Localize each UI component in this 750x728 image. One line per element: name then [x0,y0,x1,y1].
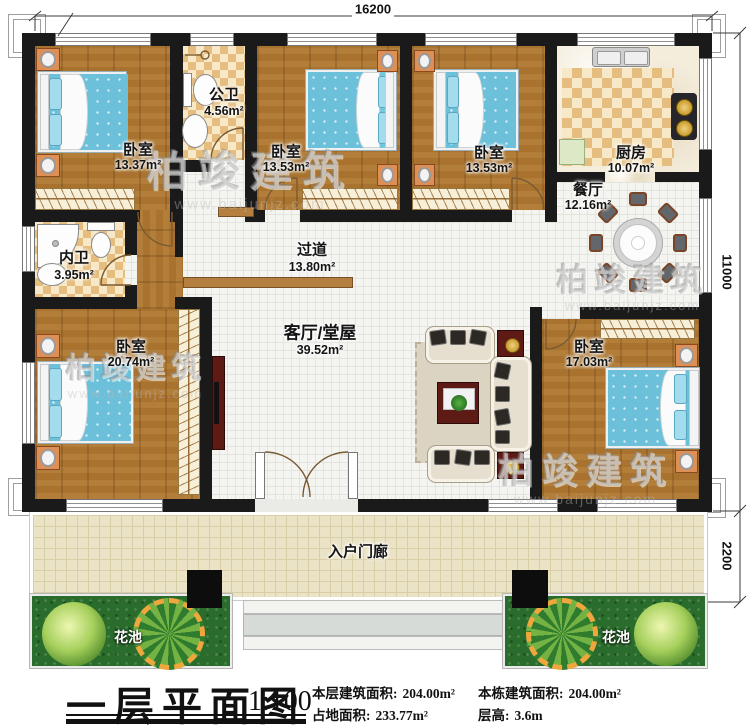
room-label-bedroom3: 卧室 [474,142,504,163]
dimension-side: 11000 [720,251,735,292]
nightstand [377,50,398,72]
toilet-icon [183,73,192,107]
room-area-bedroom2: 13.53m² [263,160,310,174]
room-label-public-bath: 公卫 [209,84,239,105]
shower-drain-icon [52,240,59,247]
sofa-cushion [454,449,472,466]
window [597,499,677,512]
room-label-bedroom5: 卧室 [574,336,604,357]
nightstand [414,164,435,186]
dining-chair [629,192,647,206]
end-table [497,330,524,357]
room-label-porch: 入户门廊 [328,541,388,562]
end-table [497,452,524,479]
entry-door-leaf [255,452,265,499]
stat-floor-area: 本层建筑面积:204.00m² [312,682,455,702]
sofa-cushion [434,450,450,465]
wall-segment [183,160,211,172]
washbasin-icon [182,114,208,148]
room-area-kitchen: 10.07m² [608,161,655,175]
palm-plant-icon [133,598,205,670]
sofa-cushion [495,430,510,444]
room-area-bedroom3: 13.53m² [466,161,513,175]
stat-building-area: 本栋建筑面积:204.00m² [478,682,621,702]
room-area-corridor: 13.80m² [289,260,336,274]
sofa-cushion [495,386,510,402]
room-area-private-bath: 3.95m² [54,268,94,282]
window [425,33,517,46]
floor-plan: 柏竣建筑 www.baijunjz.com 柏竣建筑 www.baijunjz.… [0,0,750,728]
porch-step [243,600,503,614]
window [488,499,558,512]
nightstand [377,164,398,186]
porch-pillar [512,570,548,608]
nightstand [414,50,435,72]
porch-step [243,636,503,650]
wall-segment [257,210,265,222]
palm-plant-icon [526,598,598,670]
wall-segment [655,172,699,182]
coffee-table [437,382,479,424]
wardrobe [35,188,135,210]
wall-segment [580,307,699,319]
tv-icon [214,382,219,424]
room-label-kitchen: 厨房 [616,142,646,163]
nightstand [36,446,60,470]
window [22,226,35,272]
room-area-public-bath: 4.56m² [204,104,244,118]
sofa-cushion [494,408,512,426]
wall-segment [170,46,183,222]
room-area-living: 39.52m² [297,343,344,357]
window [22,362,35,444]
label-flower-bed-left: 花池 [114,627,142,647]
sofa-cushion [469,329,487,347]
nightstand [675,450,698,473]
bed [434,70,518,150]
wall-segment [545,46,557,222]
wall-segment [35,210,140,222]
room-area-bedroom1: 13.37m² [115,158,162,172]
wall-segment [412,210,512,222]
dining-table-center [631,236,645,250]
wardrobe [600,319,695,339]
room-area-dining: 12.16m² [565,198,612,212]
nightstand [36,334,60,358]
window [287,33,377,46]
title-underline [66,714,306,716]
dining-chair [673,234,687,252]
wall-segment [400,46,412,222]
shoe-cabinet [218,207,254,217]
entry-door-leaf [348,452,358,499]
window [190,33,234,46]
room-label-living: 客厅/堂屋 [284,319,357,344]
bed [606,368,699,448]
room-area-bedroom5: 17.03m² [566,355,613,369]
tree-icon [634,602,698,666]
dimension-top: 16200 [352,2,394,17]
cutting-board-icon [559,139,585,165]
porch-step [243,614,503,636]
nightstand [675,344,698,367]
bed [38,72,126,152]
wall-segment [300,210,400,222]
label-flower-bed-right: 花池 [602,627,630,647]
room-label-dining: 餐厅 [573,179,603,200]
wall-segment [245,46,257,222]
room-label-bedroom2: 卧室 [271,141,301,162]
dimension-porch: 2200 [720,539,735,574]
bed [306,70,396,150]
sofa-cushion [474,450,490,465]
wall-segment [35,297,137,309]
porch-pillar [187,570,222,608]
window [577,33,675,46]
nightstand [36,154,60,177]
stat-floor-height: 层高:3.6m [478,704,543,724]
dining-chair [629,278,647,292]
room-label-bedroom4: 卧室 [116,336,146,357]
bed [38,362,133,443]
wall-segment [175,210,183,257]
room-label-corridor: 过道 [297,239,327,260]
toilet-icon [91,232,111,258]
toilet-icon [87,222,115,231]
dining-chair [589,234,603,252]
wall-segment [125,285,137,297]
plant-icon [451,395,467,411]
stat-footprint-area: 占地面积:233.77m² [312,704,428,724]
wall-segment [200,297,212,499]
wall-segment [125,222,137,255]
window [66,499,163,512]
room-label-private-bath: 内卫 [59,247,89,268]
window [699,58,712,150]
nightstand [36,48,60,71]
stove-icon [671,93,697,140]
wardrobe [178,309,200,495]
room-area-bedroom4: 20.74m² [108,355,155,369]
sofa-cushion [450,330,466,345]
window [699,198,712,293]
title-underline [66,719,306,724]
kitchen-sink-icon [592,47,650,67]
entry-threshold [255,499,358,512]
window [55,33,151,46]
hall-cabinet [183,277,353,288]
room-label-bedroom1: 卧室 [123,139,153,160]
wardrobe [412,188,510,210]
tree-icon [42,602,106,666]
wardrobe [302,188,398,210]
sofa-cushion [429,329,447,346]
